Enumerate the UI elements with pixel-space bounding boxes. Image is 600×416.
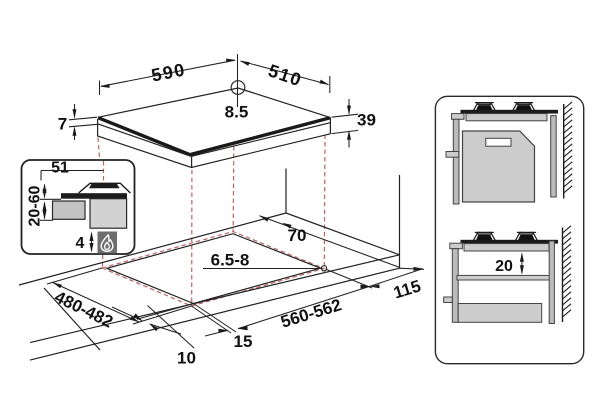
svg-text:51: 51	[51, 160, 69, 177]
svg-text:20-60: 20-60	[27, 185, 44, 226]
svg-text:4: 4	[76, 235, 85, 252]
svg-text:70: 70	[288, 226, 307, 245]
svg-text:20: 20	[495, 258, 513, 275]
svg-text:15: 15	[234, 332, 253, 351]
svg-text:10: 10	[177, 349, 196, 368]
svg-text:7: 7	[58, 115, 67, 134]
svg-text:39: 39	[357, 111, 376, 130]
svg-text:8.5: 8.5	[225, 103, 249, 122]
svg-text:6.5-8: 6.5-8	[211, 251, 250, 270]
